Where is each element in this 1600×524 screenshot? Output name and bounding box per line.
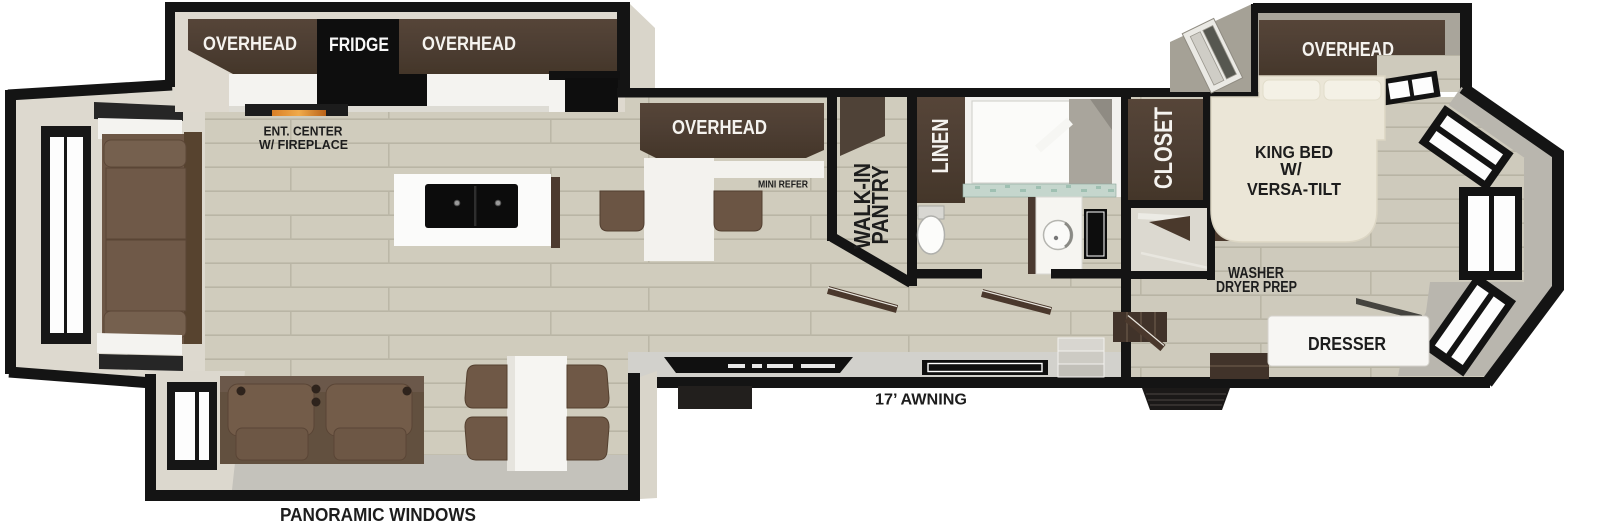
svg-text:FRIDGE: FRIDGE	[329, 34, 389, 56]
svg-text:W/: W/	[1280, 159, 1302, 179]
svg-text:17’ AWNING: 17’ AWNING	[875, 392, 967, 409]
svg-text:MINI REFER: MINI REFER	[758, 180, 809, 191]
svg-text:PANTRY: PANTRY	[867, 166, 893, 245]
svg-text:DRESSER: DRESSER	[1308, 334, 1386, 354]
svg-text:DRYER PREP: DRYER PREP	[1216, 279, 1297, 296]
svg-text:VERSA-TILT: VERSA-TILT	[1247, 179, 1341, 199]
svg-text:CLOSET: CLOSET	[1150, 107, 1178, 189]
svg-text:PANORAMIC WINDOWS: PANORAMIC WINDOWS	[280, 505, 476, 524]
svg-text:OVERHEAD: OVERHEAD	[422, 33, 516, 55]
svg-text:W/ FIREPLACE: W/ FIREPLACE	[259, 137, 348, 152]
svg-text:OVERHEAD: OVERHEAD	[203, 33, 297, 55]
svg-text:LINEN: LINEN	[927, 119, 953, 174]
svg-text:OVERHEAD: OVERHEAD	[672, 117, 767, 139]
